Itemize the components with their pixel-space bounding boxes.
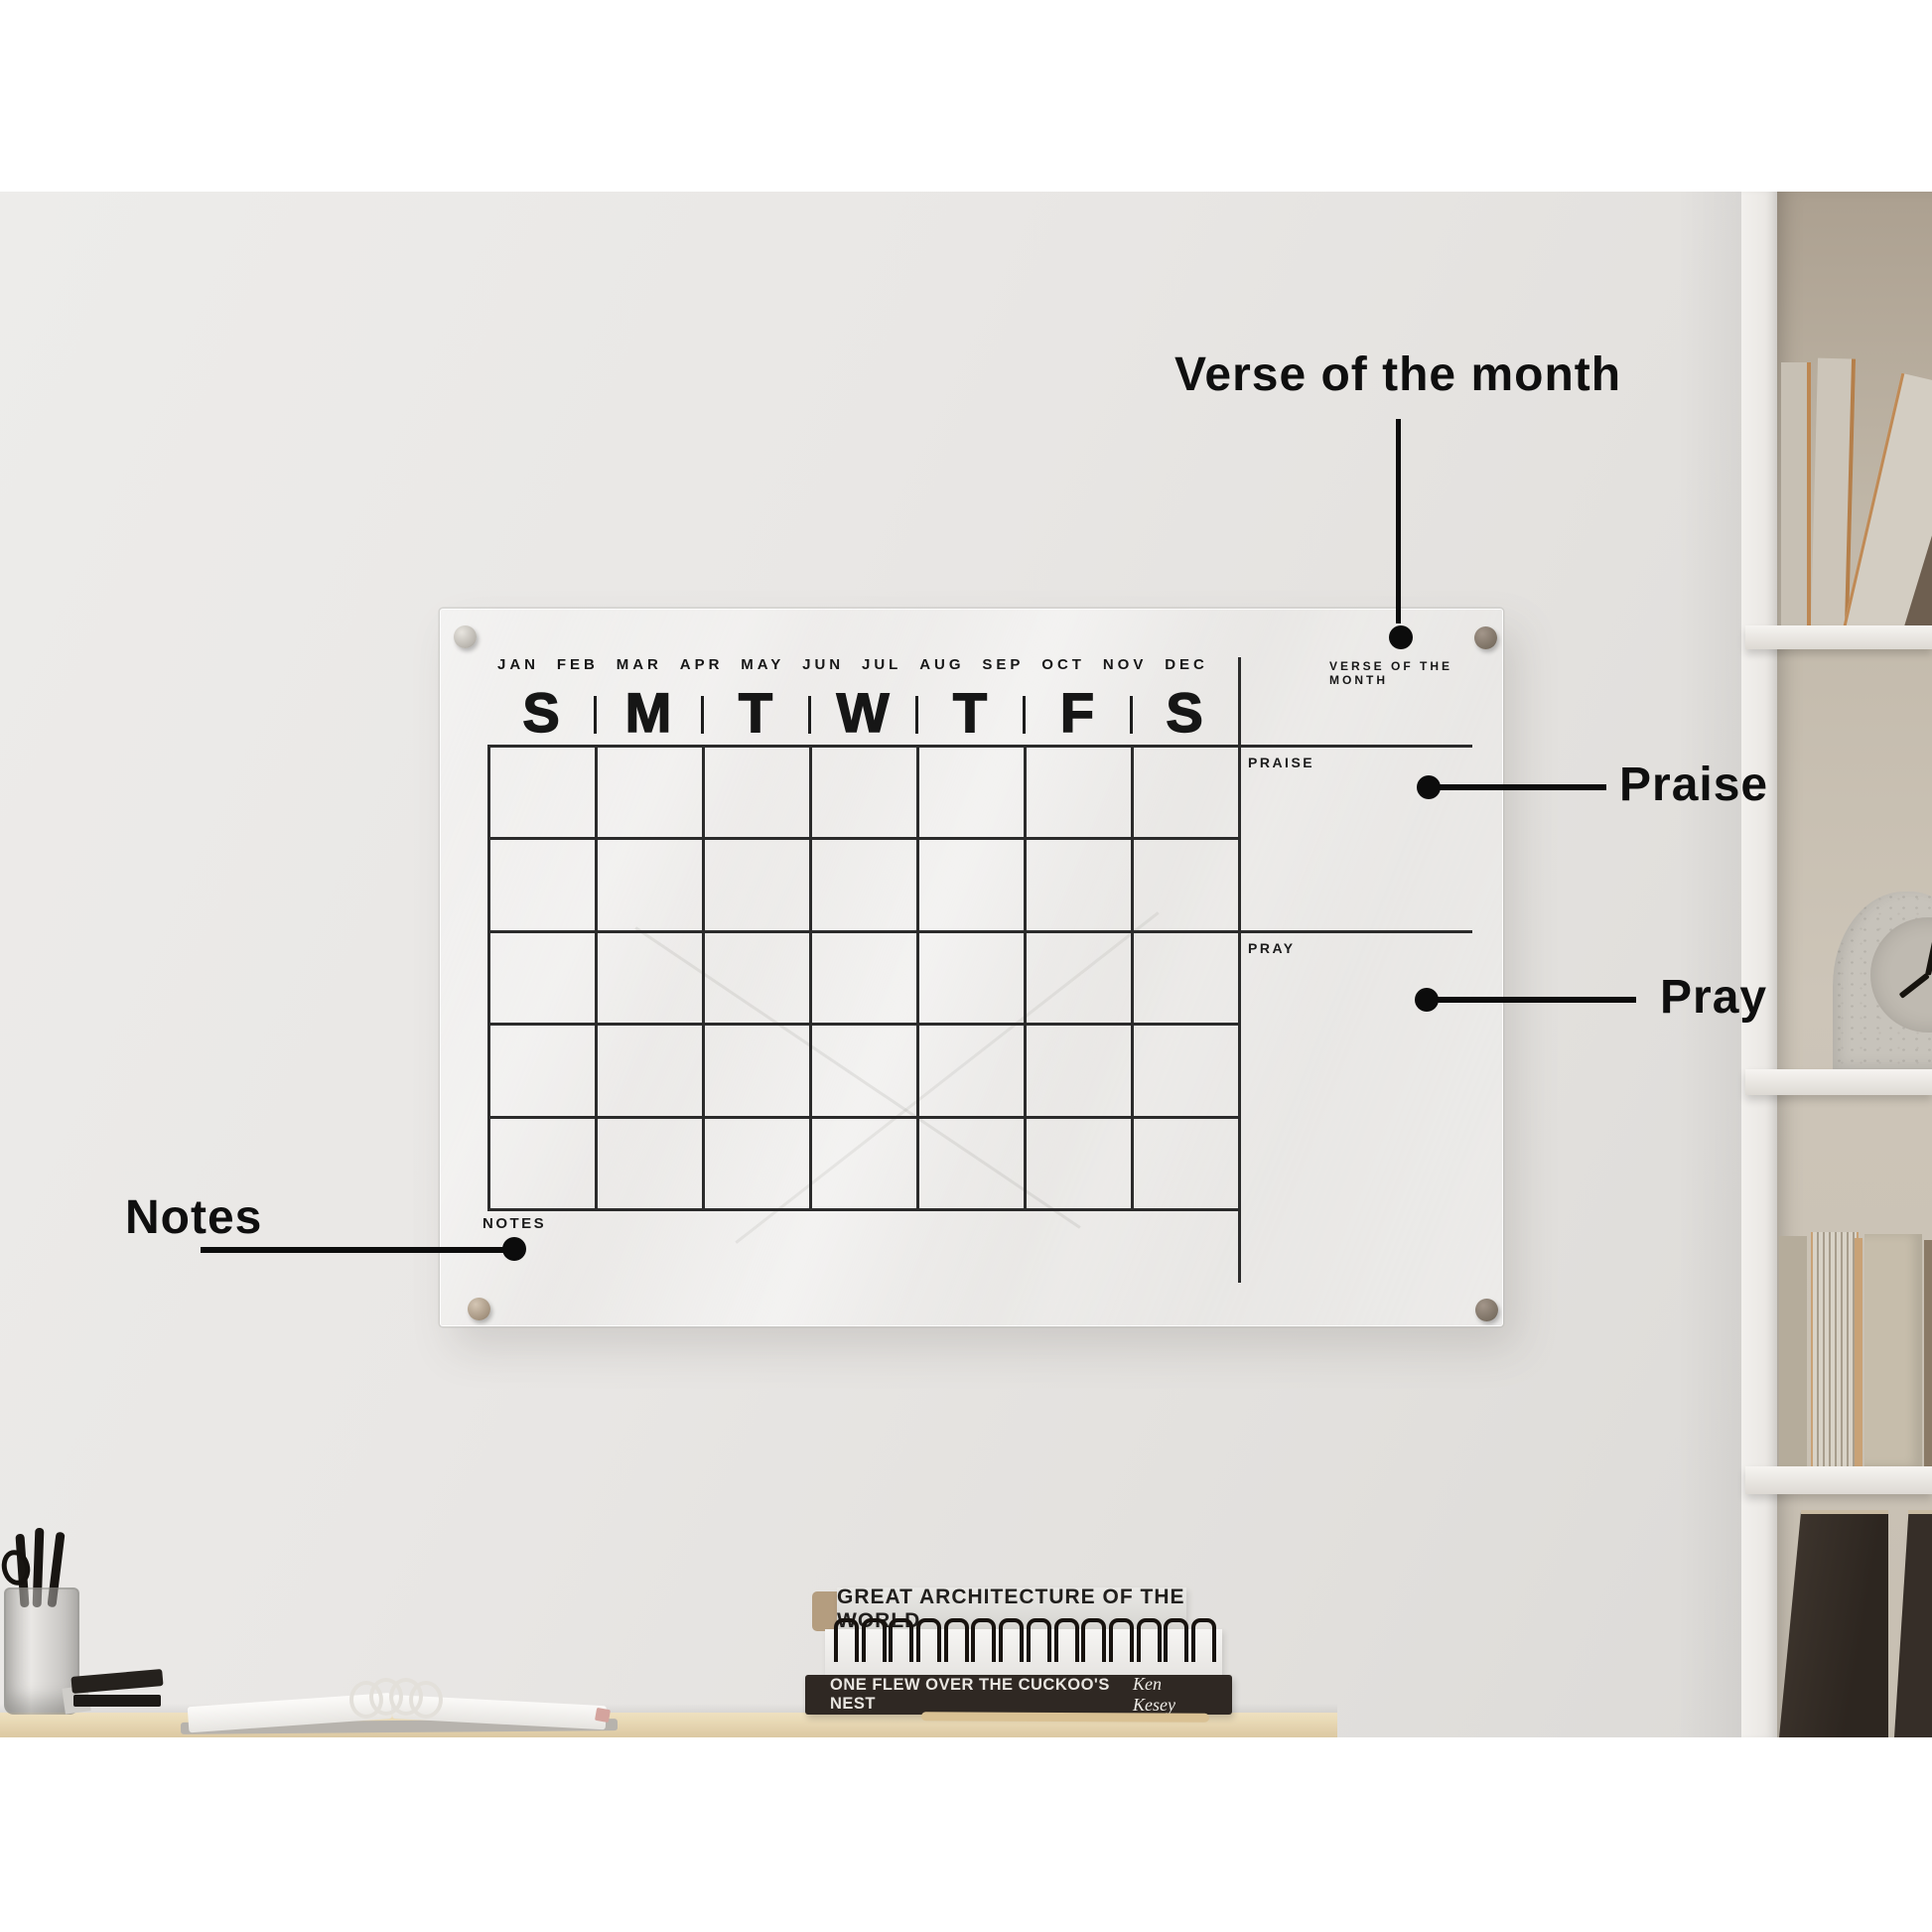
- spiral-ring: [916, 1618, 941, 1662]
- month-label: DEC: [1165, 656, 1208, 673]
- grid-line: [487, 746, 490, 1211]
- grid-line: [809, 746, 812, 1211]
- window-reflection-line: [735, 911, 1159, 1244]
- shelf-book: [1781, 362, 1811, 625]
- month-label: MAY: [741, 656, 784, 673]
- spiral-ring: [1109, 1618, 1134, 1662]
- spiral-ring: [944, 1618, 969, 1662]
- spiral-ring: [834, 1618, 859, 1662]
- callout-praise-line: [1430, 784, 1606, 790]
- month-labels-row: JAN FEB MAR APR MAY JUN JUL AUG SEP OCT …: [497, 656, 1208, 673]
- spiral-ring: [1137, 1618, 1162, 1662]
- grid-line: [595, 746, 598, 1211]
- file-box-edge: [1908, 1510, 1932, 1514]
- month-label: MAR: [617, 656, 662, 673]
- callout-pray-text: Pray: [1660, 970, 1767, 1025]
- acrylic-calendar-board: JAN FEB MAR APR MAY JUN JUL AUG SEP OCT …: [440, 609, 1503, 1326]
- callout-notes-line: [201, 1247, 510, 1253]
- notes-label: NOTES: [483, 1215, 546, 1232]
- grid-line: [702, 746, 705, 1211]
- callout-verse-dot: [1389, 625, 1413, 649]
- file-box-edge: [1801, 1510, 1888, 1514]
- grid-line: [487, 837, 1238, 840]
- scissors-handle: [0, 1547, 34, 1588]
- spiral-ring: [1191, 1618, 1216, 1662]
- callout-pray-line: [1428, 997, 1636, 1003]
- weekday-header: S: [1131, 681, 1238, 745]
- verse-of-month-label: VERSE OF THE MONTH: [1329, 659, 1502, 687]
- book-cuckoo-author: Ken Kesey: [1133, 1674, 1202, 1716]
- shelf-board: [1745, 1466, 1932, 1494]
- callout-praise-text: Praise: [1619, 758, 1768, 812]
- mounting-screw-bottom-left: [468, 1298, 490, 1320]
- spiral-ring: [999, 1618, 1024, 1662]
- stapler-foot: [73, 1695, 161, 1707]
- mounting-screw-bottom-right: [1475, 1299, 1498, 1321]
- pencil: [921, 1712, 1209, 1723]
- book-cuckoo: ONE FLEW OVER THE CUCKOO'S NEST Ken Kese…: [805, 1675, 1232, 1715]
- month-label: FEB: [557, 656, 599, 673]
- shelf-board: [1745, 1069, 1932, 1095]
- weekday-header: F: [1024, 681, 1131, 745]
- month-label: SEP: [982, 656, 1024, 673]
- grid-line: [1024, 746, 1027, 1211]
- month-label: JUL: [862, 656, 901, 673]
- grid-line: [1131, 746, 1134, 1211]
- mounting-screw-top-left: [454, 625, 477, 648]
- grid-line: [487, 1023, 1238, 1026]
- product-photo: GREAT ARCHITECTURE OF THE WORLD ONE FLEW…: [0, 0, 1932, 1932]
- month-label: APR: [680, 656, 724, 673]
- notebook-pink-tab: [595, 1708, 611, 1723]
- grid-line: [916, 746, 919, 1211]
- section-divider-line: [1238, 657, 1241, 1283]
- spiral-rings-row: [834, 1618, 1216, 1662]
- book-cuckoo-title: ONE FLEW OVER THE CUCKOO'S NEST: [830, 1676, 1133, 1714]
- shelf-book-ribbed: [1811, 1232, 1859, 1466]
- shelf-book: [1855, 1238, 1863, 1466]
- shelf-book: [1779, 1236, 1807, 1466]
- grid-line: [487, 1208, 1238, 1211]
- month-label: OCT: [1041, 656, 1085, 673]
- room-photo: GREAT ARCHITECTURE OF THE WORLD ONE FLEW…: [0, 192, 1932, 1737]
- weekday-header: T: [702, 681, 809, 745]
- spiral-ring: [889, 1618, 913, 1662]
- callout-verse-line: [1396, 419, 1401, 623]
- pray-label: PRAY: [1248, 940, 1296, 956]
- spiral-ring: [1054, 1618, 1079, 1662]
- grid-line: [487, 1116, 1238, 1119]
- spiral-ring: [1164, 1618, 1188, 1662]
- month-label: NOV: [1103, 656, 1148, 673]
- mounting-screw-top-right: [1474, 626, 1497, 649]
- bookshelf-frame: [1741, 192, 1777, 1737]
- shelf-book: [1864, 1234, 1922, 1466]
- weekday-header-row: S M T W T F S: [487, 681, 1238, 745]
- spiral-ring: [971, 1618, 996, 1662]
- shelf-board: [1745, 625, 1932, 649]
- weekday-header: M: [595, 681, 702, 745]
- spiral-ring: [1027, 1618, 1051, 1662]
- spiral-ring: [1081, 1618, 1106, 1662]
- grid-line: [487, 745, 1472, 748]
- spiral-ring: [862, 1618, 887, 1662]
- callout-notes-dot: [502, 1237, 526, 1261]
- shelf-book: [1811, 358, 1856, 626]
- weekday-header: S: [487, 681, 595, 745]
- month-label: AUG: [919, 656, 964, 673]
- shelf-book: [1924, 1240, 1932, 1466]
- month-label: JAN: [497, 656, 539, 673]
- callout-notes-text: Notes: [125, 1190, 262, 1245]
- stapler-arm: [70, 1669, 163, 1694]
- notebook-ring: [409, 1681, 443, 1719]
- grid-line: [487, 930, 1472, 933]
- weekday-header: T: [916, 681, 1024, 745]
- month-label: JUN: [802, 656, 844, 673]
- weekday-header: W: [809, 681, 916, 745]
- callout-verse-text: Verse of the month: [1174, 347, 1621, 402]
- praise-label: PRAISE: [1248, 755, 1314, 770]
